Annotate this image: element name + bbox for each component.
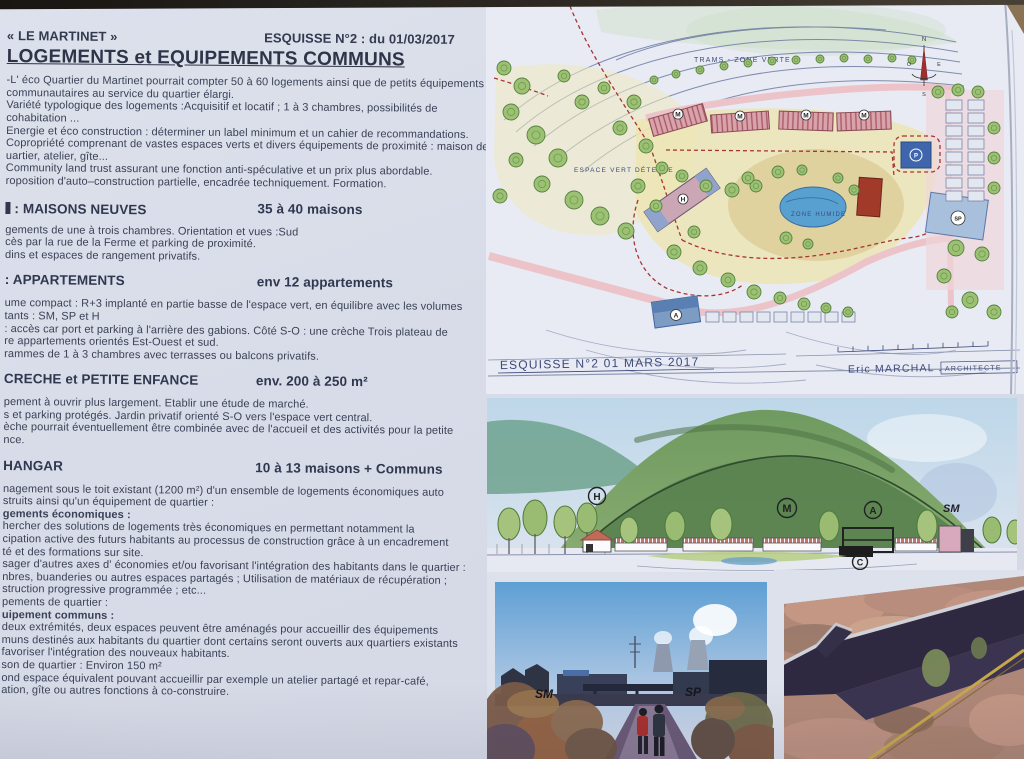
svg-text:M: M [861,113,866,120]
svg-text:E: E [937,62,941,68]
clipped-glyph [5,202,10,214]
photo-right-content [774,576,1024,759]
section-title: HANGAR [3,460,63,473]
svg-text:S: S [922,92,926,98]
plan-green-wash2 [686,4,946,56]
section-title: CRECHE et PETITE ENFANCE [4,373,199,387]
svg-text:A: A [674,313,679,320]
annotation-sm: SM [535,687,554,701]
svg-text:M: M [803,113,808,120]
architect-name: Eric MARCHAL . [848,362,943,376]
elevation-sketch: H M A C SM [487,398,1017,572]
section-heading: : MAISONS NEUVES35 à 40 maisons [5,201,483,222]
section-badge: 35 à 40 maisons [257,203,362,217]
pond: ZONE HUMIDE [780,187,846,227]
svg-text:H: H [593,492,600,503]
intro-paragraph: -L' éco Quartier du Martinet pourrait co… [6,74,485,192]
svg-text:A: A [869,506,876,517]
project-title: « LE MARTINET » [7,30,118,44]
photo-gabion-wall [774,570,1024,759]
section-title: : MAISONS NEUVES [14,203,146,217]
section-hangar: HANGAR10 à 13 maisons + Communsnagement … [1,460,481,701]
water-strip [721,557,777,565]
svg-text:M: M [782,503,791,515]
cloud [867,414,987,462]
svg-text:P: P [914,154,918,160]
section-title: : APPARTEMENTS [5,274,125,288]
section-maisons-neuves: : MAISONS NEUVES35 à 40 maisonsgements d… [5,201,484,266]
svg-text:N: N [922,37,926,43]
page-title: LOGEMENTS et EQUIPEMENTS COMMUNS [7,51,485,68]
section-badge: env. 200 à 250 m² [256,375,368,389]
section-heading: CRECHE et PETITE ENFANCEenv. 200 à 250 m… [4,373,482,394]
section-heading: HANGAR10 à 13 maisons + Communs [3,460,481,481]
sketch-reference: ESQUISSE N°2 : du 01/03/2017 [264,32,455,46]
section-heading: : APPARTEMENTSenv 12 appartements [5,274,483,295]
section-appartements: : APPARTEMENTSenv 12 appartementsume com… [4,274,483,364]
site-plan-sketch: TRAMS - ZONE VERTE ESPACE VERT DÉTENTE [486,0,1024,394]
page-header: « LE MARTINET » ESQUISSE N°2 : du 01/03/… [7,30,485,47]
section-creche: CRECHE et PETITE ENFANCEenv. 200 à 250 m… [3,373,482,451]
svg-text:C: C [857,558,864,568]
svg-text:O: O [907,62,912,68]
annotation-sp: SP [685,685,702,699]
document-page: « LE MARTINET » ESQUISSE N°2 : du 01/03/… [0,0,1024,759]
sections-container: : MAISONS NEUVES35 à 40 maisonsgements d… [1,201,483,701]
svg-text:H: H [681,197,686,204]
architect-title: ARCHITECTE [945,365,1002,373]
svg-text:M: M [675,112,680,119]
text-column: « LE MARTINET » ESQUISSE N°2 : du 01/03/… [1,30,485,701]
label-zone-humide: ZONE HUMIDE [791,212,846,218]
svg-text:SP: SP [954,217,962,223]
svg-text:M: M [737,114,742,121]
section-badge: env 12 appartements [257,277,393,291]
photo-site-view: SM SP [487,572,774,759]
existing-red-building [857,177,883,217]
photo-left-content: SM SP [487,582,774,759]
label-sm-elev: SM [943,503,960,515]
section-badge: 10 à 13 maisons + Communs [255,462,443,476]
